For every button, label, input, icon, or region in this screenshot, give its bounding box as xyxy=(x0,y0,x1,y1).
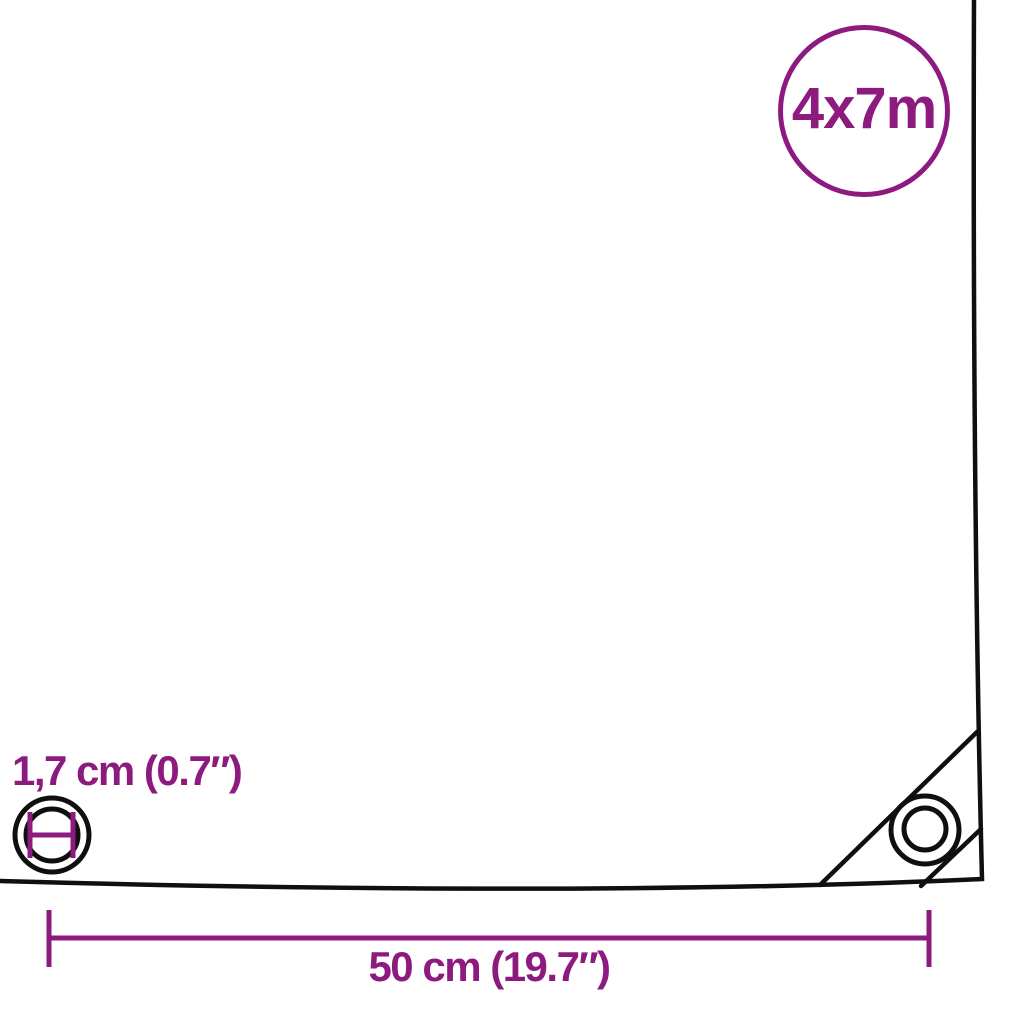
product-dimension-diagram: 4x7m 1,7 cm (0.7″) 50 cm (19.7″) xyxy=(0,0,1024,1024)
grommet-diameter-icon xyxy=(15,798,89,872)
size-badge: 4x7m xyxy=(778,25,950,197)
corner-grommet-inner-ring xyxy=(904,808,946,850)
size-badge-label: 4x7m xyxy=(792,80,936,138)
grommet-diameter-label: 1,7 cm (0.7″) xyxy=(12,750,241,792)
corner-grommet-icon xyxy=(891,796,959,864)
diameter-measure-mark xyxy=(30,812,73,858)
grommet-spacing-label: 50 cm (19.7″) xyxy=(49,946,929,988)
